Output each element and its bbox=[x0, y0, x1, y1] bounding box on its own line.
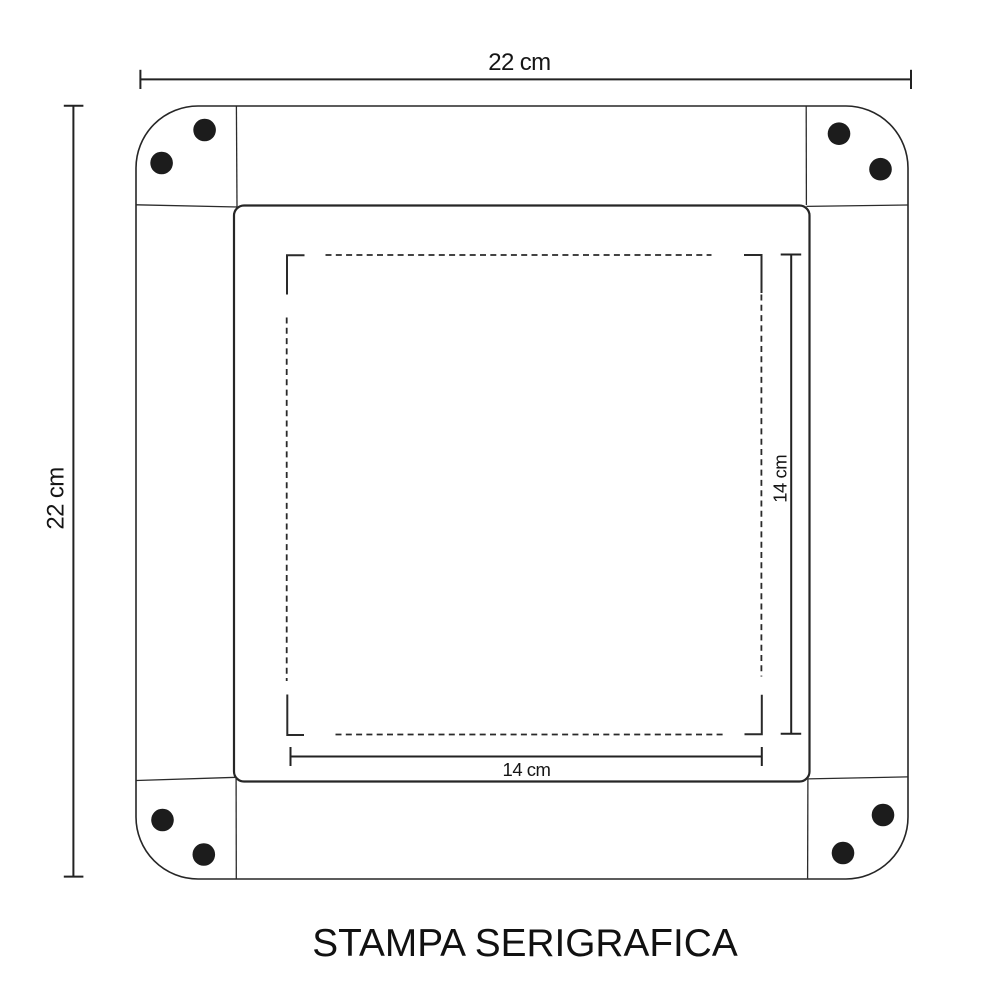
svg-text:22 cm: 22 cm bbox=[488, 49, 550, 76]
svg-text:14 cm: 14 cm bbox=[503, 759, 551, 780]
svg-text:STAMPA SERIGRAFICA: STAMPA SERIGRAFICA bbox=[312, 922, 738, 965]
svg-text:14 cm: 14 cm bbox=[770, 455, 791, 503]
svg-text:22 cm: 22 cm bbox=[43, 467, 70, 529]
